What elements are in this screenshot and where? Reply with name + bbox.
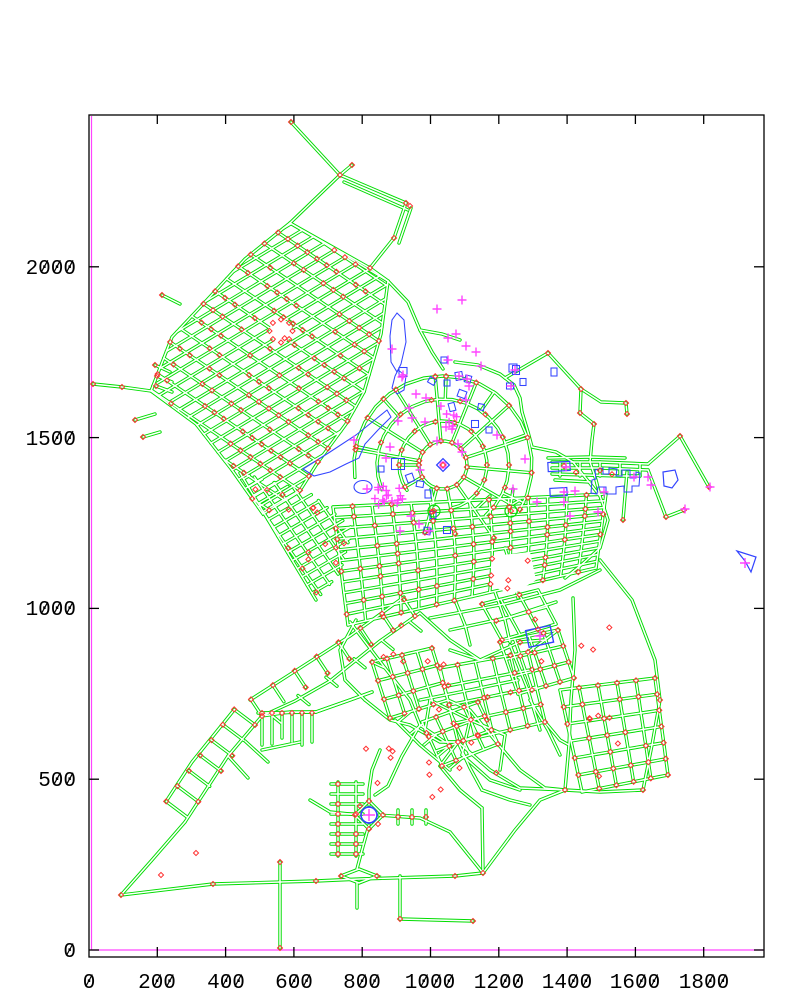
svg-text:0: 0 (63, 941, 76, 964)
svg-text:200: 200 (138, 972, 176, 995)
svg-text:500: 500 (38, 770, 76, 793)
svg-text:0: 0 (83, 972, 96, 995)
svg-text:1800: 1800 (679, 972, 729, 995)
svg-text:400: 400 (207, 972, 245, 995)
svg-text:600: 600 (275, 972, 313, 995)
svg-text:800: 800 (343, 972, 381, 995)
